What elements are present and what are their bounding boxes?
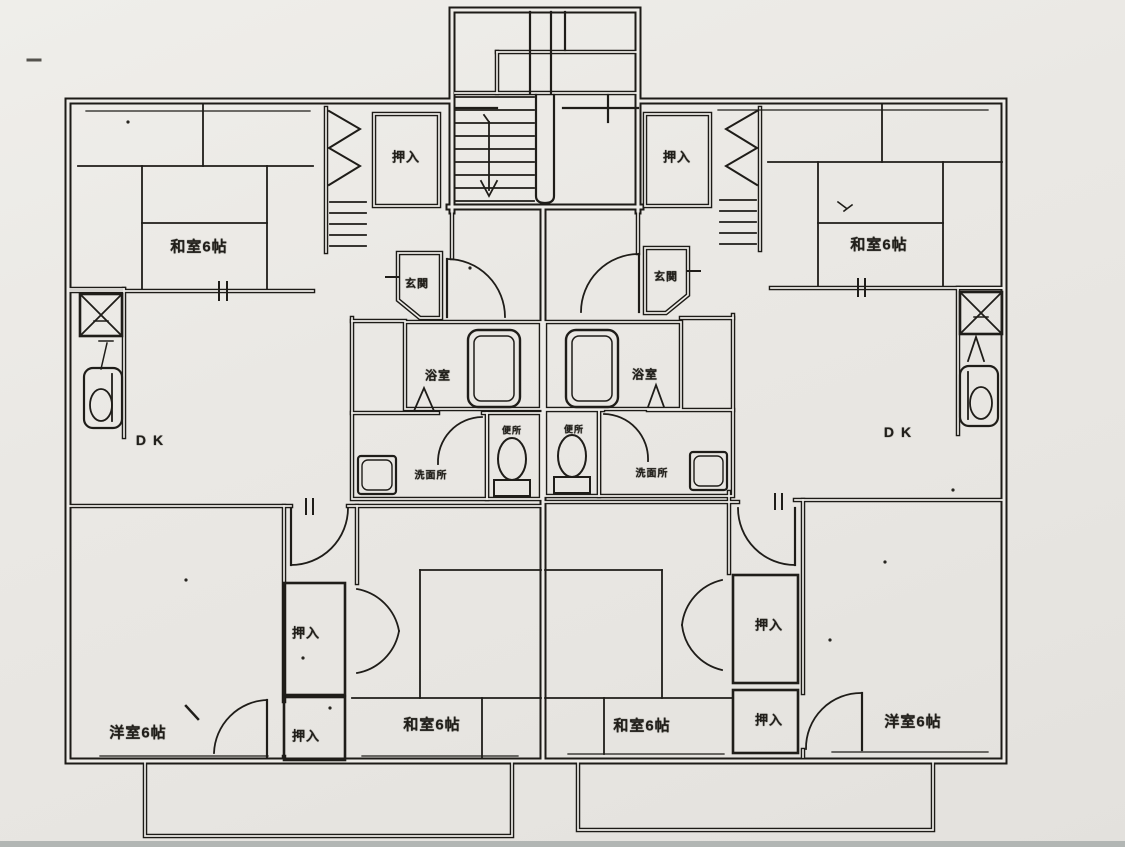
washbasin <box>358 456 396 494</box>
label-dining-kitchen-left: DK <box>136 432 170 448</box>
label-closet-mid-left-upper: 押入 <box>292 623 320 642</box>
door-swing-arc <box>214 254 862 753</box>
label-japanese-room-bottom-right: 和室6帖 <box>613 715 670 736</box>
label-entrance-right: 玄関 <box>654 268 678 284</box>
stair-down-arrow <box>481 115 497 196</box>
label-toilet-right: 便所 <box>564 423 584 436</box>
label-closet-mid-right-upper: 押入 <box>755 615 783 634</box>
label-dining-kitchen-right: DK <box>884 424 918 440</box>
label-japanese-room-top-left: 和室6帖 <box>170 236 227 257</box>
label-entrance-left: 玄関 <box>405 275 429 291</box>
label-western-room-bottom-left: 洋室6帖 <box>109 722 166 743</box>
floor-plan-photo: 押入 押入 和室6帖 和室6帖 玄関 玄関 浴室 浴室 DK DK 便所 便所 … <box>0 0 1125 847</box>
label-closet-mid-left-lower: 押入 <box>292 726 320 745</box>
floor-plan-drawing <box>0 0 1125 847</box>
washing-machine <box>690 452 727 490</box>
label-western-room-bottom-right: 洋室6帖 <box>884 711 941 732</box>
label-washroom-right: 洗面所 <box>636 465 669 480</box>
label-closet-top-right: 押入 <box>663 147 691 166</box>
floor-plan: 押入 押入 和室6帖 和室6帖 玄関 玄関 浴室 浴室 DK DK 便所 便所 … <box>0 0 1125 847</box>
label-closet-mid-right-lower: 押入 <box>755 710 783 729</box>
label-washroom-left: 洗面所 <box>415 467 448 482</box>
label-bath-left: 浴室 <box>425 367 451 384</box>
label-toilet-left: 便所 <box>502 424 522 437</box>
label-japanese-room-bottom-left: 和室6帖 <box>403 714 460 735</box>
label-japanese-room-top-right: 和室6帖 <box>850 234 907 255</box>
label-bath-right: 浴室 <box>632 366 658 383</box>
label-closet-top-left: 押入 <box>392 147 420 166</box>
